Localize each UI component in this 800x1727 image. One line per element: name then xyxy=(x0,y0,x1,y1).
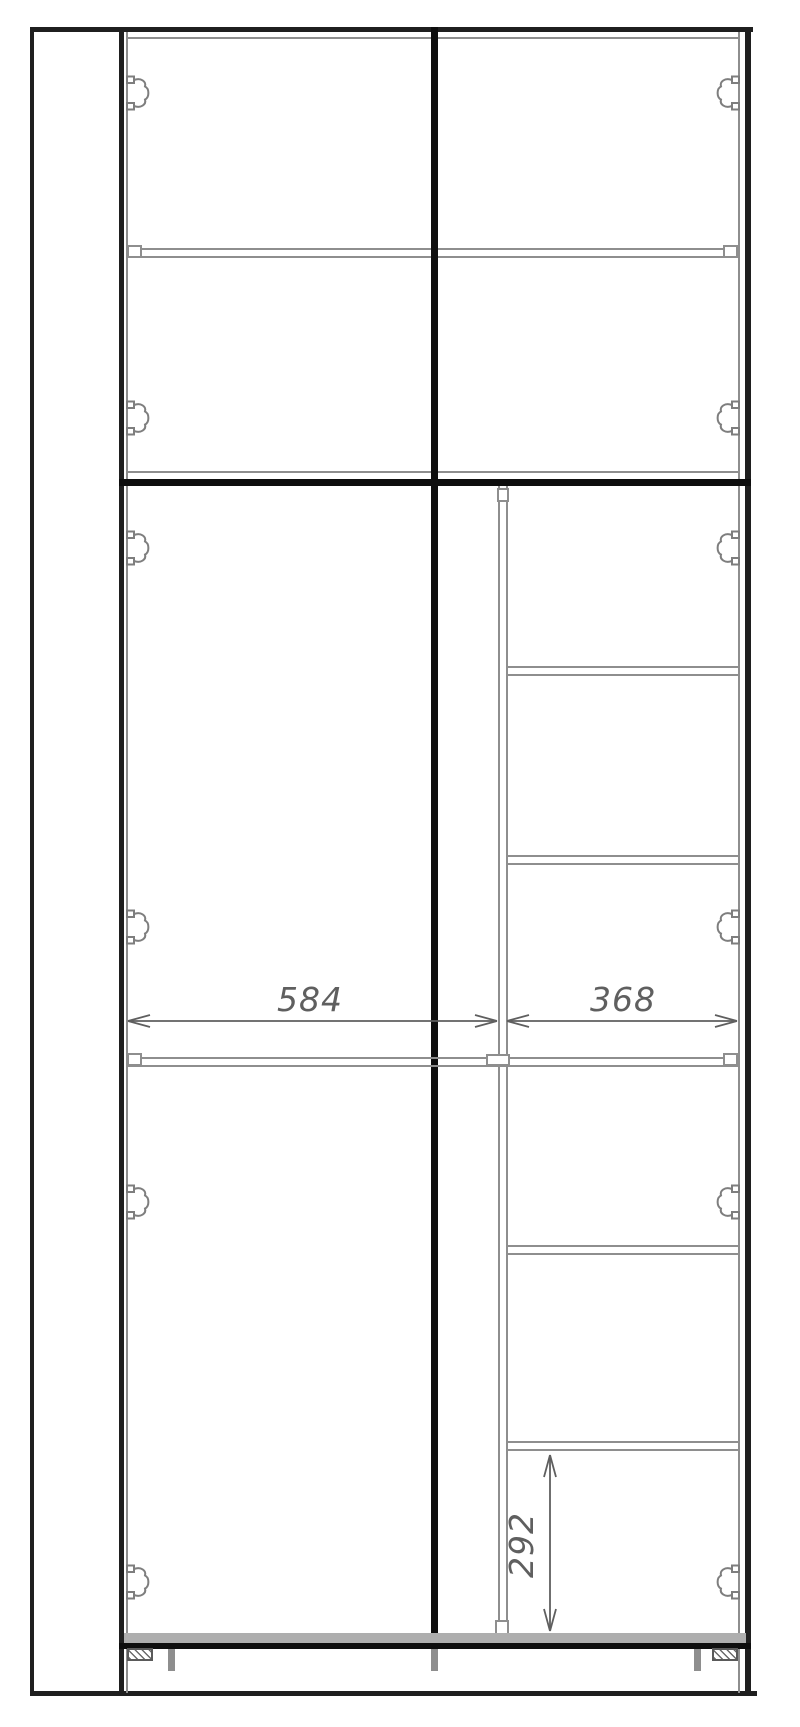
shelf-connector-icon xyxy=(723,245,738,258)
dimension-292: 292 xyxy=(503,1450,575,1635)
right-plinth-outer xyxy=(745,1649,751,1693)
right-shelf-4-top xyxy=(507,1245,738,1247)
dimension-label: 584 xyxy=(277,980,343,1019)
shelf-connector-icon xyxy=(723,1053,738,1066)
cup-hinge-icon xyxy=(125,1564,151,1600)
right-side-panel-outer xyxy=(745,27,751,1649)
right-shelf-4-bottom xyxy=(507,1253,738,1255)
right-shelf-1-bottom xyxy=(507,674,738,676)
right-shelf-2-bottom xyxy=(507,863,738,865)
leg-stub xyxy=(168,1649,175,1671)
cup-hinge-icon xyxy=(125,909,151,945)
cup-hinge-icon xyxy=(715,909,741,945)
shelf-connector-icon xyxy=(127,1053,142,1066)
left-side-panel-inner xyxy=(126,32,128,1645)
cabinet-top-edge xyxy=(30,27,753,32)
cup-hinge-icon xyxy=(715,400,741,436)
cup-hinge-icon xyxy=(125,75,151,111)
cup-hinge-icon xyxy=(715,1184,741,1220)
center-door-stile xyxy=(431,27,438,1649)
cup-hinge-icon xyxy=(715,75,741,111)
left-side-panel-outer xyxy=(119,27,124,1649)
adjustable-foot-icon xyxy=(127,1648,153,1661)
dimension-584: 584 xyxy=(124,978,502,1028)
dimension-368: 368 xyxy=(503,978,741,1028)
leg-stub xyxy=(431,1649,438,1671)
dimension-label: 368 xyxy=(590,980,656,1019)
floor-line xyxy=(30,1691,757,1696)
bottom-panel xyxy=(124,1633,746,1643)
cup-hinge-icon xyxy=(715,530,741,566)
cup-hinge-icon xyxy=(715,1564,741,1600)
cup-hinge-icon xyxy=(125,1184,151,1220)
drawing-sheet: 584 368 292 xyxy=(0,0,800,1727)
right-shelf-1-top xyxy=(507,666,738,668)
partition-connector-icon xyxy=(497,488,509,502)
adjustable-foot-icon xyxy=(712,1648,738,1661)
right-shelf-5-top xyxy=(507,1441,738,1443)
left-plinth-outer xyxy=(119,1649,124,1693)
shelf-connector-icon xyxy=(127,245,142,258)
right-side-panel-inner xyxy=(738,32,740,1645)
door-split-line-bottom xyxy=(128,1065,738,1067)
right-shelf-2-top xyxy=(507,855,738,857)
wall-line xyxy=(30,27,34,1696)
shelf-connector-icon xyxy=(486,1054,510,1066)
leg-stub xyxy=(694,1649,701,1671)
dimension-label: 292 xyxy=(503,1512,541,1578)
door-split-line-top xyxy=(128,1057,738,1059)
right-plinth-inner xyxy=(738,1649,740,1693)
cup-hinge-icon xyxy=(125,400,151,436)
cup-hinge-icon xyxy=(125,530,151,566)
